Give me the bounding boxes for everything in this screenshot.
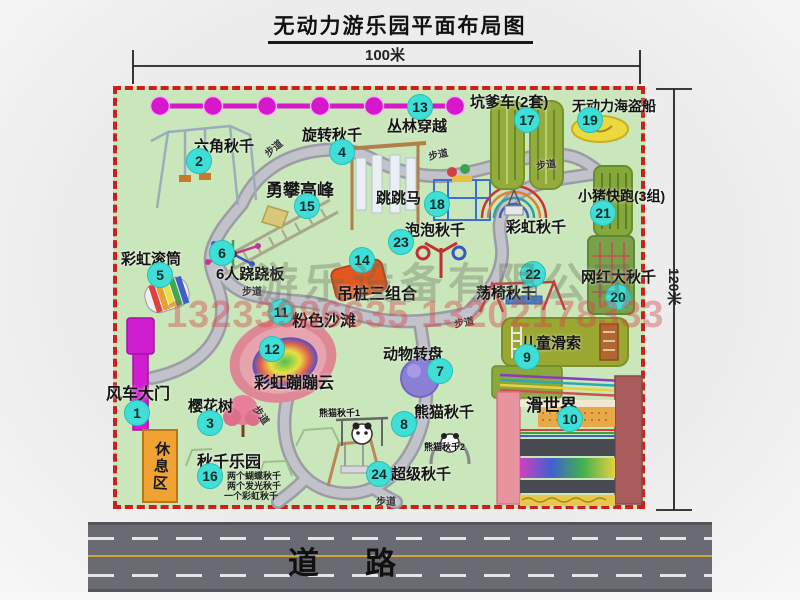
page-bottom-margin <box>0 592 800 600</box>
badge-1: 1 <box>124 400 150 426</box>
badge-2: 2 <box>186 148 212 174</box>
badge-6: 6 <box>209 240 235 266</box>
badge-15: 15 <box>294 193 320 219</box>
badge-3: 3 <box>197 410 223 436</box>
badge-4: 4 <box>329 139 355 165</box>
label-swing-park-sub3: 一个彩虹秋千 <box>224 489 278 502</box>
label-jumping-horse: 跳跳马 <box>376 187 421 208</box>
height-dimension-label: 120米 <box>664 268 684 305</box>
page-title: 无动力游乐园平面布局图 <box>0 10 800 40</box>
label-panda-swing-2: 熊猫秋千2 <box>424 440 465 453</box>
badge-19: 19 <box>577 107 603 133</box>
badge-12: 12 <box>259 336 285 362</box>
badge-10: 10 <box>557 406 583 432</box>
rest-area: 休息区 <box>142 429 178 503</box>
road-label: 道路 <box>288 538 442 583</box>
label-panda-swing-1: 熊猫秋千1 <box>319 406 360 419</box>
phone-watermark: 13233986635 13202178333 <box>166 294 665 337</box>
badge-9: 9 <box>514 344 540 370</box>
label-bubble-swing: 泡泡秋千 <box>405 219 465 240</box>
badge-16: 16 <box>197 463 223 489</box>
width-dimension-label: 100米 <box>133 44 637 65</box>
badge-7: 7 <box>427 358 453 384</box>
badge-8: 8 <box>391 411 417 437</box>
label-rainbow-bounce-cloud: 彩虹蹦蹦云 <box>254 369 334 393</box>
label-footpath: 步道 <box>376 493 396 508</box>
badge-24: 24 <box>366 461 392 487</box>
label-rainbow-swing: 彩虹秋千 <box>506 216 566 237</box>
label-pit-car: 坑爹车(2套) <box>470 91 548 112</box>
label-piggy-run: 小猪快跑(3组) <box>578 186 665 206</box>
badge-5: 5 <box>147 262 173 288</box>
park-map-scene: 道路 <box>0 0 800 600</box>
badge-21: 21 <box>590 200 616 226</box>
badge-17: 17 <box>514 107 540 133</box>
label-footpath: 步道 <box>535 155 557 173</box>
badge-13: 13 <box>407 94 433 120</box>
badge-18: 18 <box>424 191 450 217</box>
label-panda-swing: 熊猫秋千 <box>414 401 474 422</box>
road: 道路 <box>88 522 712 592</box>
label-super-swing: 超级秋千 <box>391 463 451 484</box>
